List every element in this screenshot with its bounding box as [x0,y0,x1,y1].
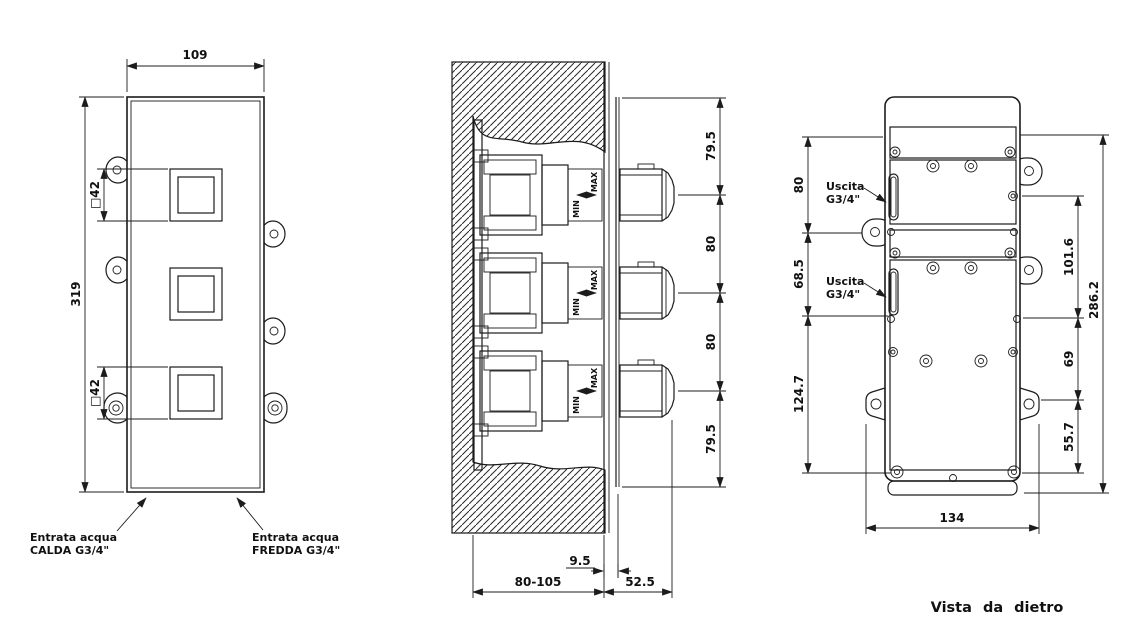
cartridge-1: MAX MIN [474,150,602,240]
dim-55-7: 55.7 [1062,422,1076,452]
section-view: MAX MIN MAX MIN [452,62,726,598]
dim-124-7: 124.7 [792,375,806,413]
dim-68-5: 68.5 [792,259,806,289]
max-label-1: MAX [590,171,599,192]
dim-134: 134 [939,511,964,525]
outlet-callout-1: Uscita G3/4" [826,180,886,206]
cold-inlet-label-line1: Entrata acqua [252,531,339,544]
cold-inlet-callout: Entrata acqua FREDDA G3/4" [237,498,340,557]
front-view: 109 319 □42 □42 Entrata acqua CALDA G3/4 [30,48,340,557]
dim-101-6: 101.6 [1062,238,1076,276]
knob-2 [620,262,674,319]
rear-body [885,97,1020,481]
min-label-1: MIN [572,200,581,218]
rear-bottom-tab [888,481,1017,495]
front-dim-width: 109 [127,48,264,92]
dim-42-bottom: □42 [88,379,102,407]
valve-cartridges: MAX MIN MAX MIN [474,150,602,436]
rear-view-caption: Vista da dietro [931,600,1064,616]
outlet-2-label-line1: Uscita [826,275,864,288]
dim-286-2: 286.2 [1087,281,1101,319]
knob-3 [620,360,674,417]
max-label-2: MAX [590,269,599,290]
dim-79-5-bottom: 79.5 [704,424,718,454]
cartridge-3: MAX MIN [474,346,602,436]
cartridge-2: MAX MIN [474,248,602,338]
min-label-2: MIN [572,298,581,316]
hot-inlet-label-line1: Entrata acqua [30,531,117,544]
outlet-1-label-line2: G3/4" [826,193,860,206]
front-body [127,97,264,492]
wall-hatch [452,62,605,533]
section-knobs [620,164,674,417]
dim-52-5: 52.5 [625,575,655,589]
outlet-2-label-line2: G3/4" [826,288,860,301]
cad-sheet: 109 319 □42 □42 Entrata acqua CALDA G3/4 [0,0,1141,641]
max-label-3: MAX [590,367,599,388]
dim-69: 69 [1062,351,1076,368]
cold-inlet-label-line2: FREDDA G3/4" [252,544,340,557]
rear-view: Uscita G3/4" Uscita G3/4" 80 68.5 124.7 [792,97,1109,616]
min-label-3: MIN [572,396,581,414]
knob-1 [620,164,674,221]
rear-dim-right: 101.6 69 55.7 286.2 [1020,135,1109,493]
technical-drawing: 109 319 □42 □42 Entrata acqua CALDA G3/4 [0,0,1141,641]
dim-80-upper: 80 [704,236,718,253]
outlet-callout-2: Uscita G3/4" [826,275,886,301]
dim-79-5-top: 79.5 [704,131,718,161]
front-dim-height: 319 [69,97,124,492]
dim-80-lower: 80 [704,334,718,351]
dim-42-top: □42 [88,181,102,209]
wall-face-lines [604,62,619,533]
dim-80-rear: 80 [792,177,806,194]
outlet-1-label-line1: Uscita [826,180,864,193]
dim-319: 319 [69,281,83,306]
dim-9-5: 9.5 [569,554,590,568]
dim-80-105: 80-105 [515,575,562,589]
valve-back-rail [474,120,482,470]
hot-inlet-callout: Entrata acqua CALDA G3/4" [30,498,146,557]
hot-inlet-label-line2: CALDA G3/4" [30,544,109,557]
dim-109: 109 [182,48,207,62]
